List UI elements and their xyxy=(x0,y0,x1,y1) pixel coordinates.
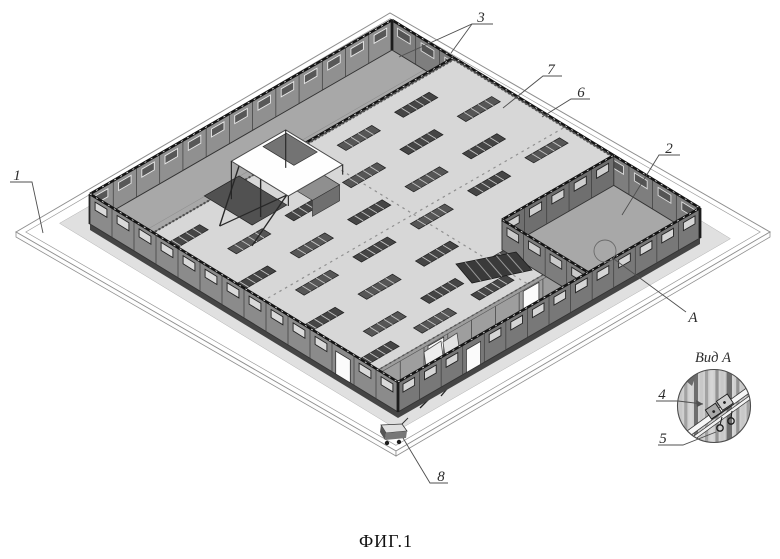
building-structure xyxy=(60,20,731,445)
detail-view-title: Вид A xyxy=(695,350,731,366)
callout-5-label: 5 xyxy=(659,431,667,447)
detail-wall-stud xyxy=(752,368,755,446)
figure-caption: ФИГ.1 xyxy=(359,531,413,551)
detail-wall-stud xyxy=(741,368,744,446)
detail-wall-stud xyxy=(747,368,750,446)
callout-A-label: A xyxy=(687,310,698,326)
callout-8-label: 8 xyxy=(437,469,445,485)
isometric-building-figure: 1 3 7 6 2 A 8 4 5 Вид A ФИГ.1 xyxy=(0,0,780,559)
detail-wall-stud xyxy=(684,368,687,446)
detail-view-a: 4 5 Вид A xyxy=(656,350,755,453)
figure-page: 1 3 7 6 2 A 8 4 5 Вид A ФИГ.1 xyxy=(0,0,780,559)
callout-1-label: 1 xyxy=(13,168,21,184)
detail-wall-stud xyxy=(679,368,682,446)
callout-2-label: 2 xyxy=(665,141,673,157)
trolley-wheel xyxy=(385,441,389,445)
callout-4-label: 4 xyxy=(658,387,666,403)
detail-wall-stud xyxy=(705,368,708,446)
callout-6-label: 6 xyxy=(577,85,585,101)
trolley-wheel xyxy=(397,440,401,444)
callout-3-label: 3 xyxy=(476,10,485,26)
